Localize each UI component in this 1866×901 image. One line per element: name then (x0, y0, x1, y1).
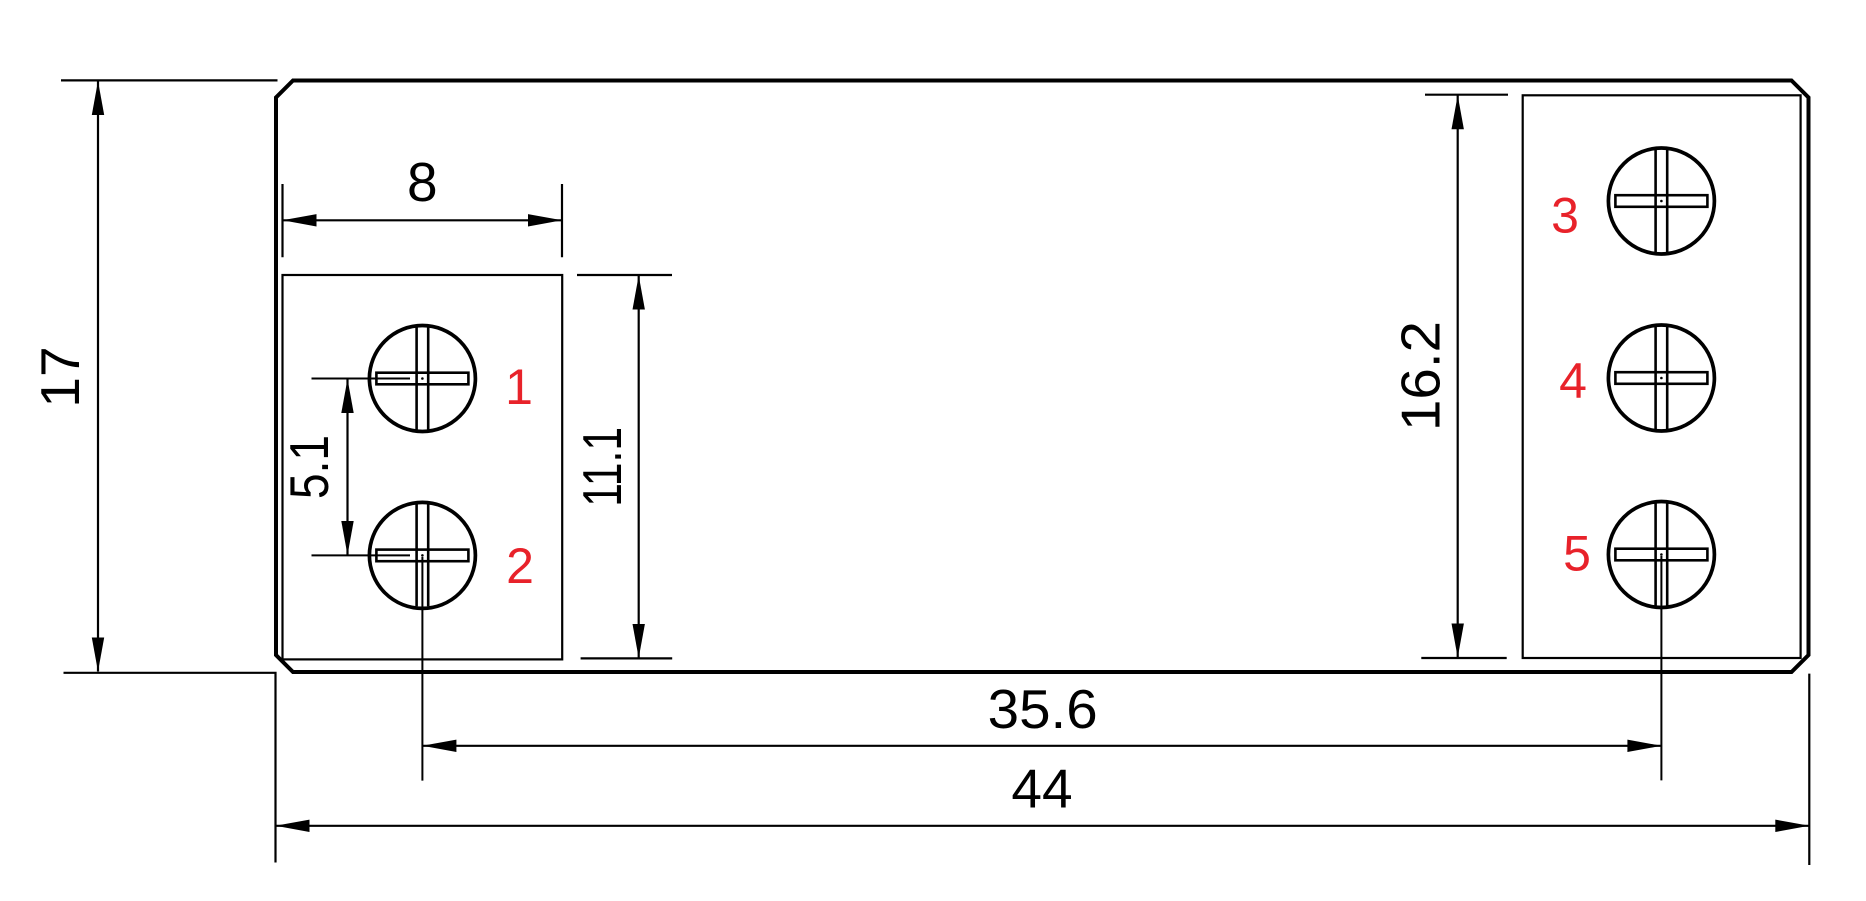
svg-text:3: 3 (1551, 188, 1579, 244)
svg-text:1: 1 (505, 359, 533, 415)
svg-text:17: 17 (29, 346, 91, 407)
svg-text:8: 8 (407, 151, 438, 213)
svg-text:35.6: 35.6 (988, 678, 1098, 740)
svg-text:16.2: 16.2 (1390, 321, 1452, 431)
svg-text:11.1: 11.1 (571, 427, 633, 507)
svg-text:5: 5 (1563, 526, 1591, 582)
svg-text:2: 2 (506, 538, 534, 594)
svg-text:5.1: 5.1 (278, 435, 340, 499)
svg-text:4: 4 (1559, 353, 1587, 409)
svg-text:44: 44 (1011, 757, 1072, 819)
